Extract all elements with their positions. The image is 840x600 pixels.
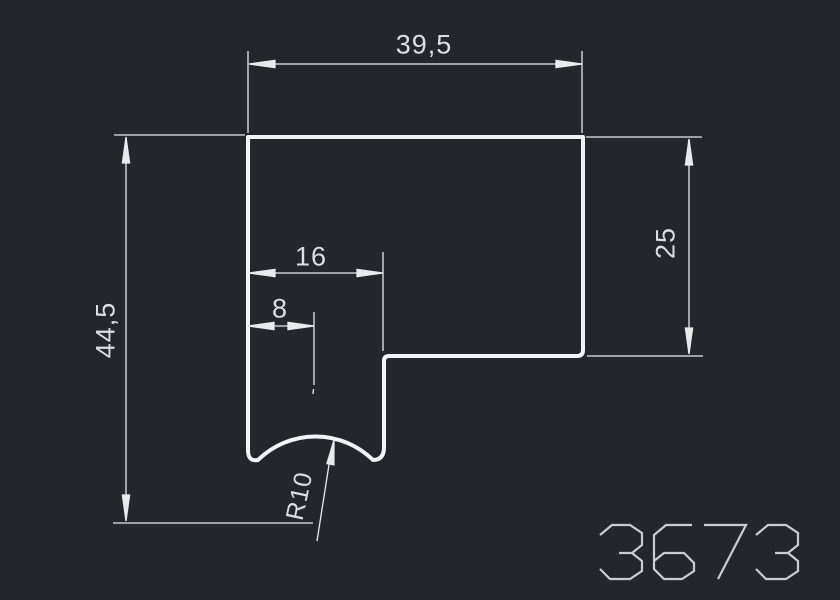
dim-center-offset-label: 8 <box>272 294 288 325</box>
arrowhead-left <box>249 60 275 67</box>
leader-line <box>317 452 331 541</box>
arrowhead-down <box>122 495 129 521</box>
extension-tick <box>313 389 314 394</box>
arrowhead-left <box>249 269 275 276</box>
arrowhead-down <box>685 328 692 354</box>
drawing-number-digit <box>756 525 798 553</box>
dim-slot-width-label: 16 <box>295 242 327 273</box>
arrowhead-right <box>357 269 383 276</box>
arrowhead-leader <box>327 440 334 465</box>
arrowhead-up <box>685 139 692 165</box>
drawing-number-digit <box>654 525 694 579</box>
drawing-number-digit <box>756 553 798 579</box>
dimension-total-height <box>113 135 313 523</box>
dim-total-width-label: 39,5 <box>396 30 453 61</box>
technical-drawing <box>0 0 840 600</box>
drawing-number-digit <box>704 525 746 579</box>
dimension-right-height <box>586 137 703 356</box>
dim-right-height-label: 25 <box>651 227 682 259</box>
dimension-total-width <box>248 51 582 133</box>
arrowhead-right <box>556 60 582 67</box>
arrowhead-right <box>288 322 314 329</box>
drawing-number <box>588 516 838 588</box>
profile-outline <box>248 137 583 460</box>
radius-leader <box>317 440 334 541</box>
drawing-number-digit <box>600 553 642 579</box>
cad-viewport: 39,5 44,5 25 16 8 R10 <box>0 0 840 600</box>
dim-total-height-label: 44,5 <box>91 302 122 359</box>
arrowhead-left <box>248 322 274 329</box>
drawing-number-digit <box>600 525 642 553</box>
arrowhead-up <box>122 137 129 163</box>
